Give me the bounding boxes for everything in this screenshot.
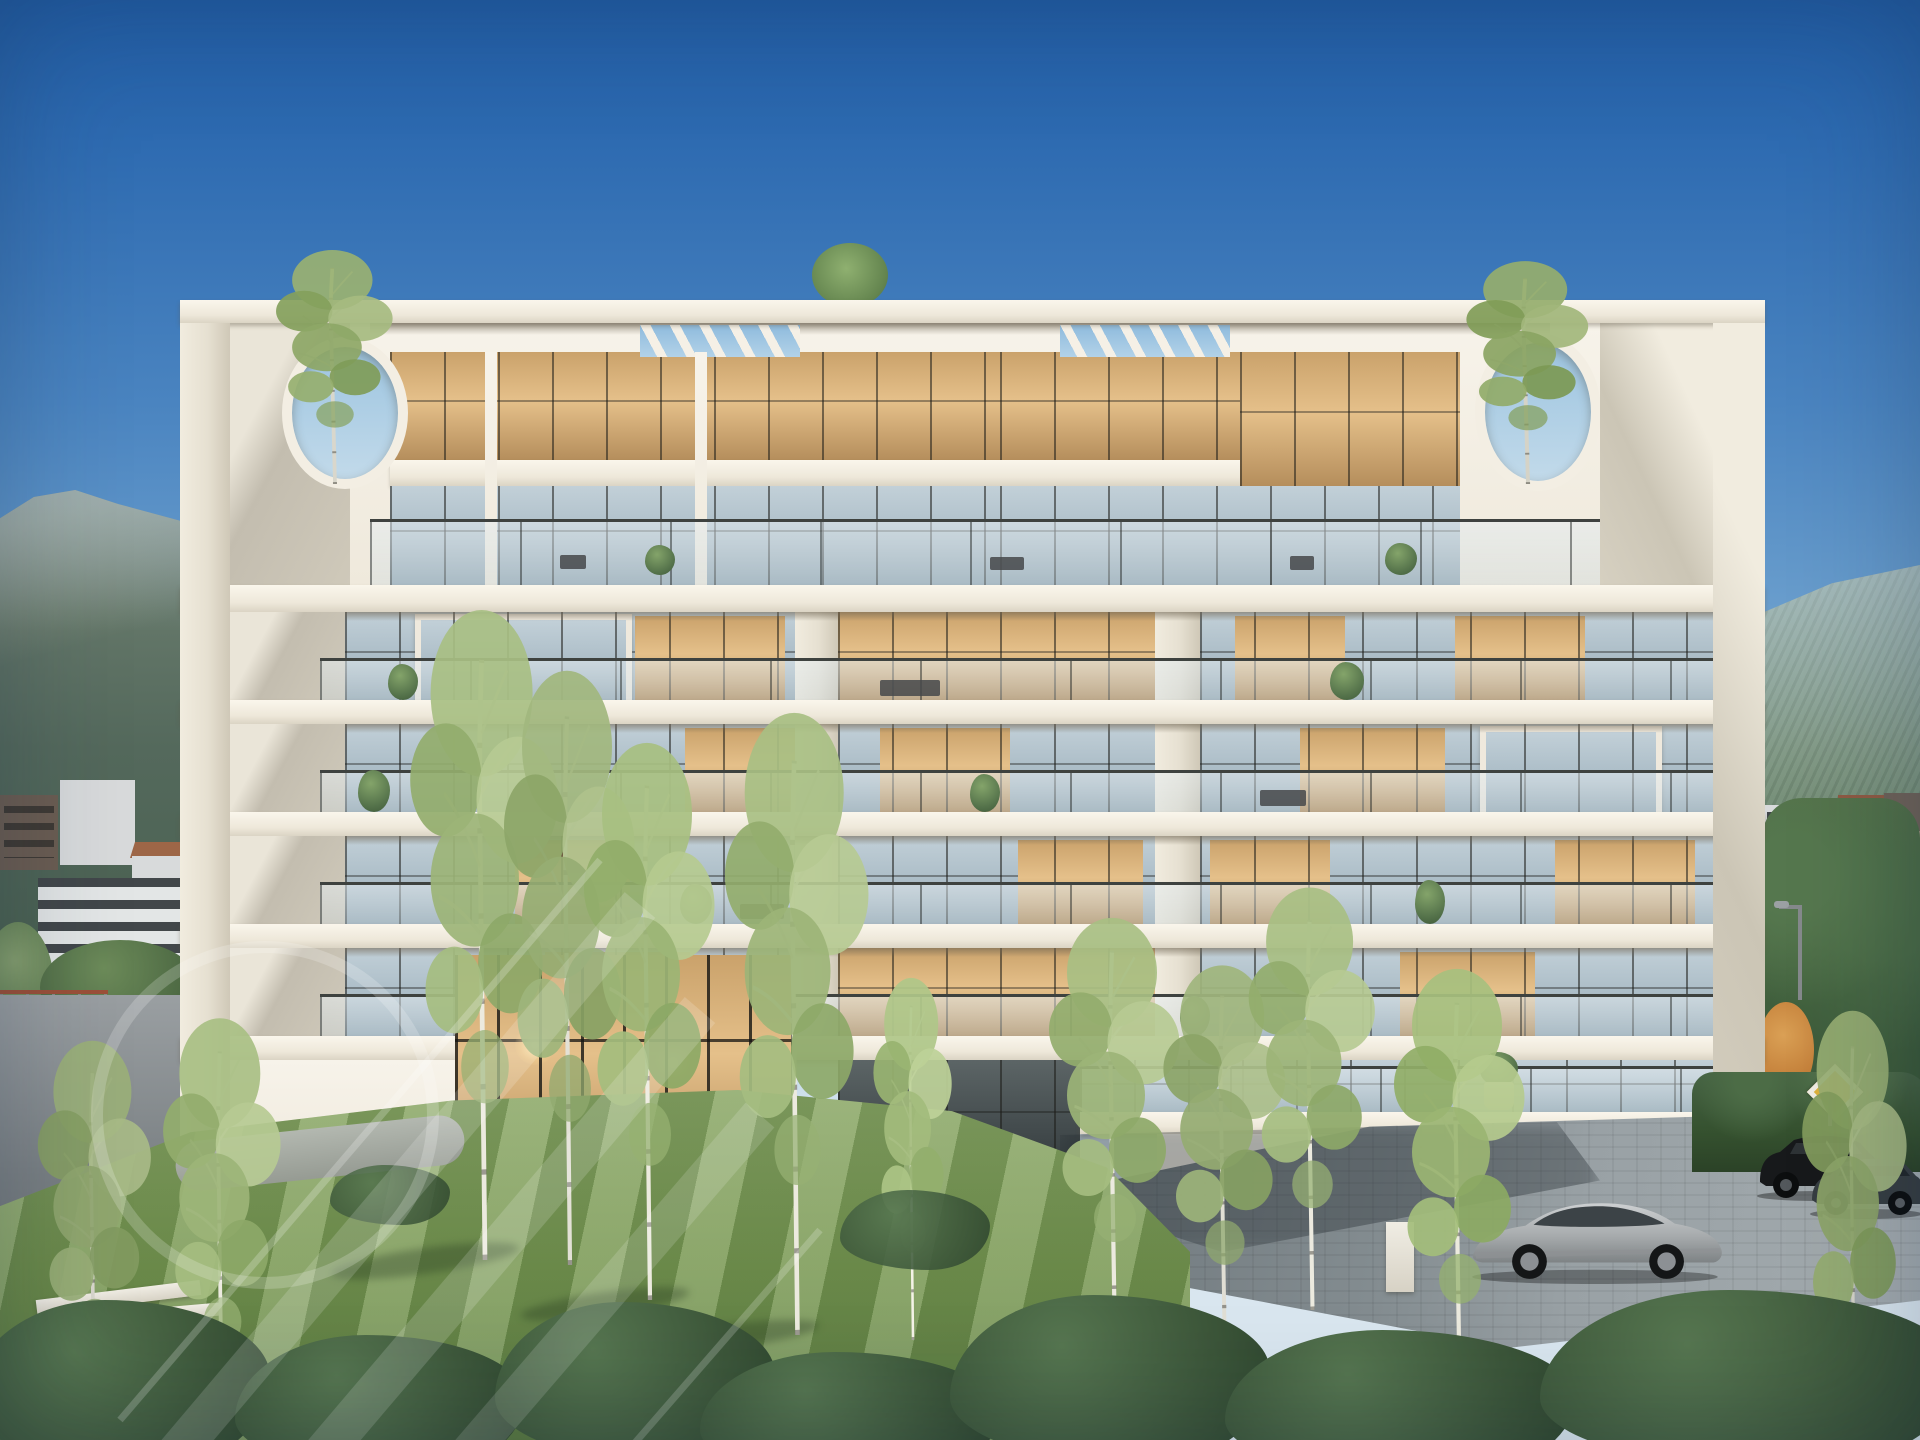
birch-tree — [1240, 855, 1385, 1310]
roof-oval-tree-right — [1458, 244, 1598, 484]
penthouse-glazing-warm — [1000, 352, 1240, 460]
balcony-plant — [1415, 880, 1445, 924]
roof-garden-tree — [812, 243, 888, 307]
birch-tree — [575, 700, 725, 1300]
terrace-sofa — [990, 557, 1024, 570]
balcony-plant — [358, 770, 390, 812]
penthouse-soffit — [370, 323, 1550, 335]
pergola-slats-right — [1060, 325, 1230, 357]
terrace-plant — [645, 545, 675, 575]
balcony-dining-set — [880, 680, 940, 696]
penthouse-mid-fascia — [390, 460, 1240, 486]
render-stage — [0, 0, 1920, 1440]
pergola-slats-left — [640, 325, 800, 357]
background-brick-windows — [4, 806, 54, 858]
balcony-plant — [1330, 662, 1364, 700]
shrub-small — [330, 1165, 450, 1225]
shrub-small — [840, 1190, 990, 1270]
roof-oval-tree-left — [268, 232, 402, 484]
penthouse-right-pier — [1600, 323, 1713, 585]
terrace-chair — [1290, 556, 1314, 570]
birch-sapling — [868, 950, 958, 1340]
balcony-plant — [970, 774, 1000, 812]
terrace-plant — [1385, 543, 1417, 575]
penthouse-glazing-right — [1240, 352, 1460, 486]
background-grey-towers — [60, 780, 135, 865]
street-lamp-head — [1774, 901, 1789, 908]
balcony-chairs — [1260, 790, 1306, 806]
